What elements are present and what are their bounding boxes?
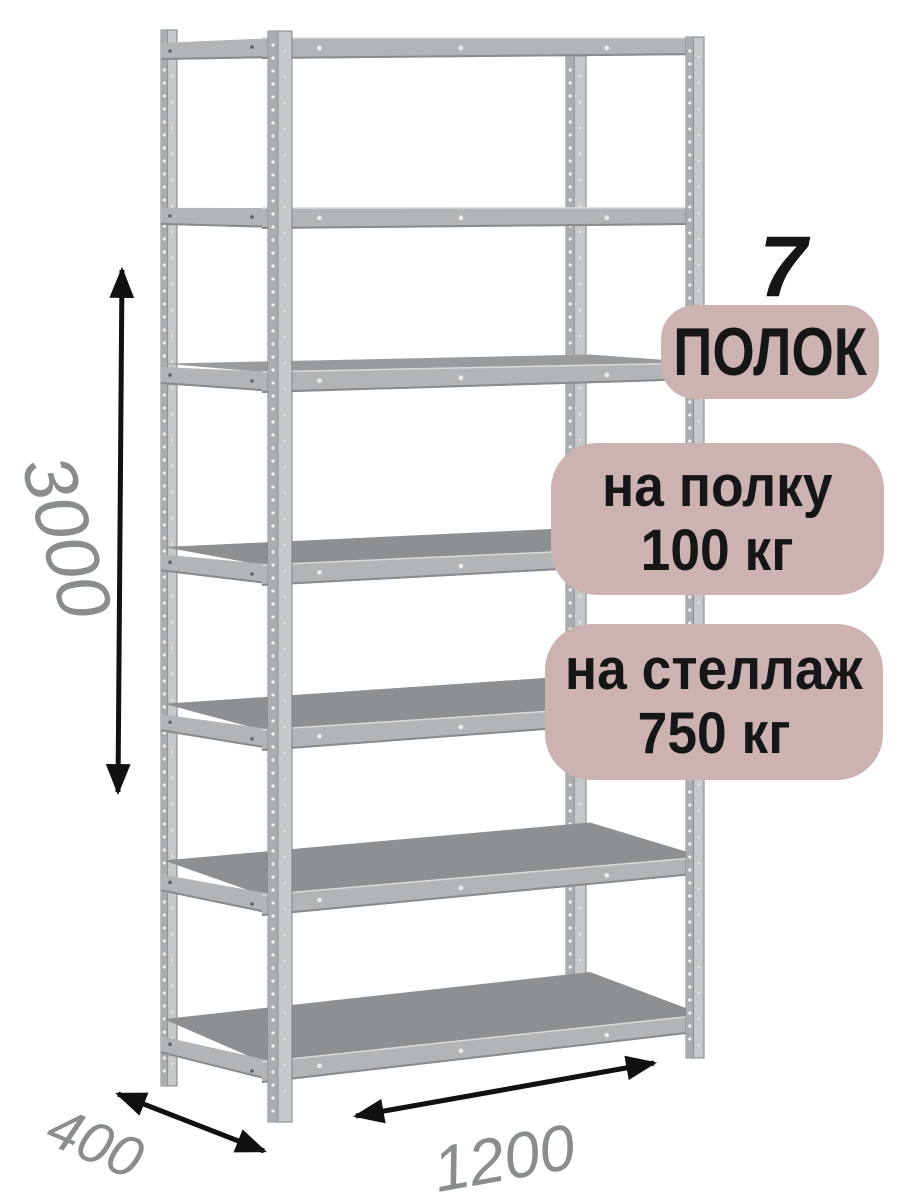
per-rack-load-line2: 750 кг: [638, 702, 791, 766]
rack-illustration: 3000 400 1200: [0, 0, 900, 1200]
rack-post-front-left: [268, 31, 292, 1122]
width-dimension-arrow-icon: [356, 1063, 654, 1116]
shelf-count-label: ПОЛОК: [673, 313, 867, 391]
width-dimension-label: 1200: [428, 1110, 581, 1200]
shelf-1: [161, 38, 704, 60]
shelf-3: [161, 355, 704, 394]
per-shelf-load-line2: 100 кг: [641, 519, 794, 583]
per-shelf-load-line1: на полку: [602, 455, 833, 519]
product-card: 3000 400 1200 7 ПОЛОК на полку 100 кг на…: [0, 0, 900, 1200]
per-shelf-load-badge: на полку 100 кг: [551, 443, 884, 595]
depth-dimension-label: 400: [38, 1094, 152, 1192]
per-rack-load-badge: на стеллаж 750 кг: [545, 624, 883, 780]
shelf-2: [161, 208, 704, 229]
shelf-count-number: 7: [724, 220, 842, 315]
height-dimension-arrow-icon: [118, 270, 122, 792]
per-rack-load-line1: на стеллаж: [565, 638, 863, 702]
shelf-6: [161, 823, 704, 917]
height-dimension-label: 3000: [6, 447, 129, 627]
shelf-count-badge: ПОЛОК: [661, 305, 879, 399]
